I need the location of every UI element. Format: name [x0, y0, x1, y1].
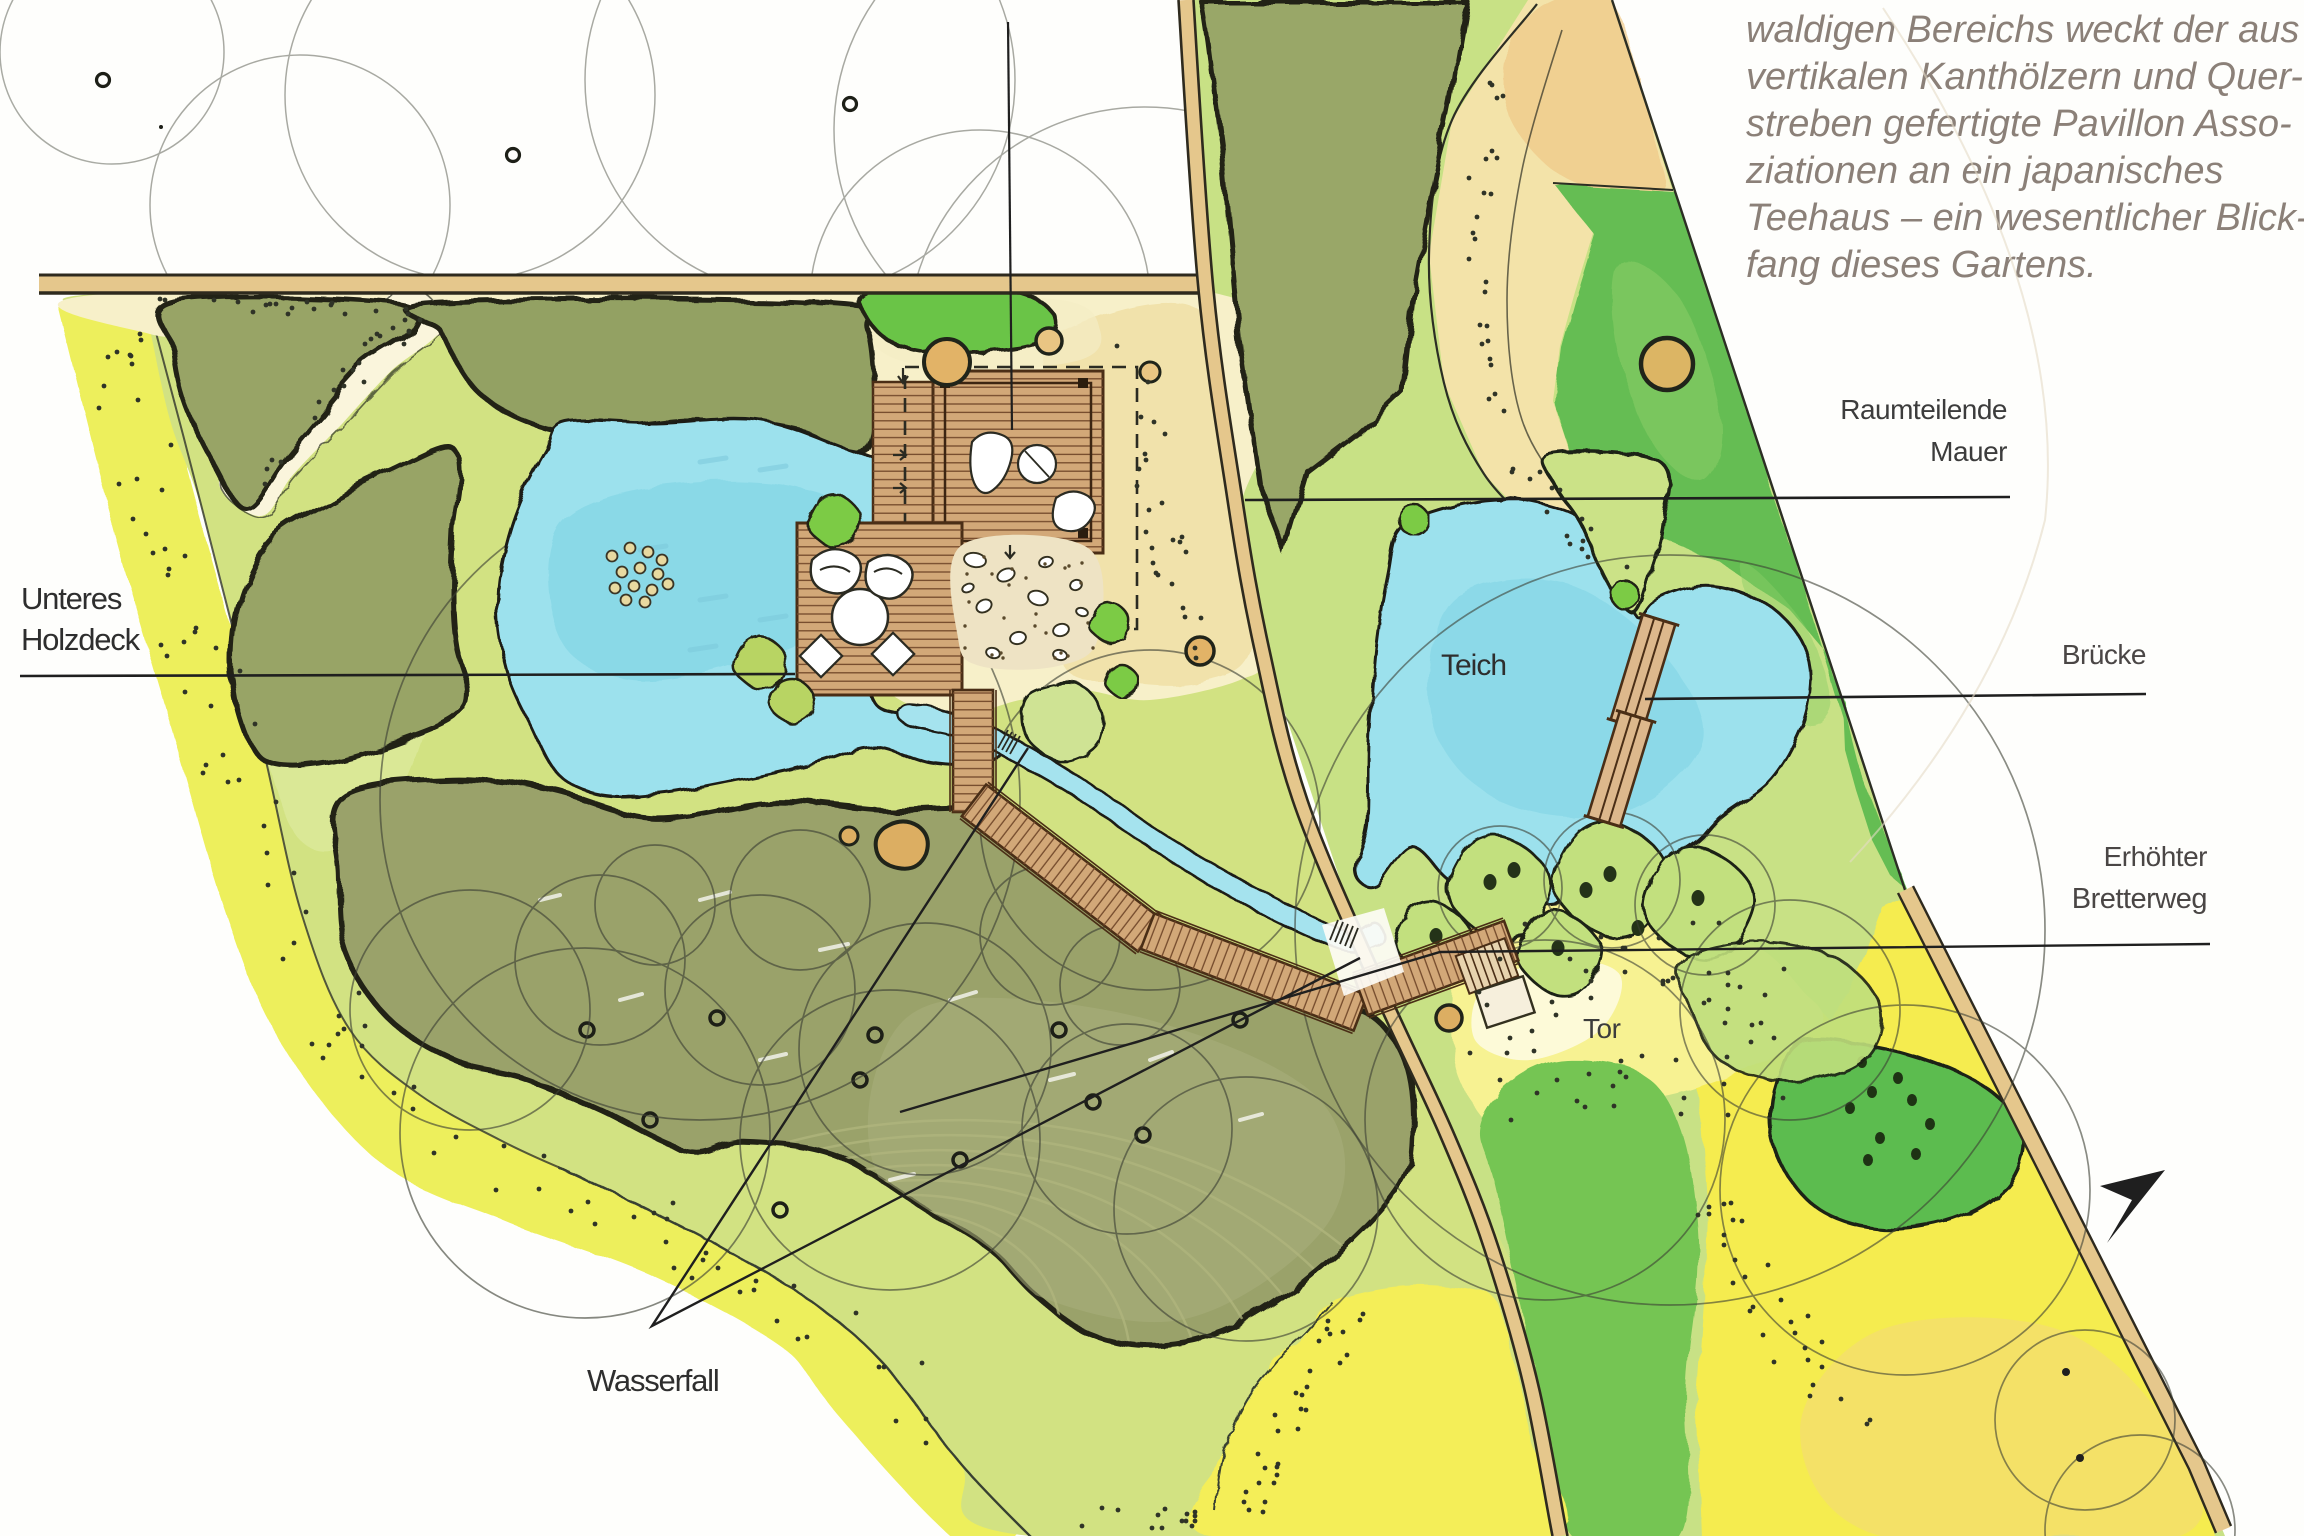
svg-text:Brücke: Brücke	[2062, 639, 2146, 670]
svg-text:Erhöhter: Erhöhter	[2104, 841, 2208, 872]
svg-text:vertikalen Kanthölzern und Que: vertikalen Kanthölzern und Quer-	[1746, 56, 2303, 98]
svg-text:Holzdeck: Holzdeck	[21, 622, 141, 657]
svg-text:fang dieses Gartens.: fang dieses Gartens.	[1746, 244, 2097, 286]
svg-text:ziationen an ein japanisches: ziationen an ein japanisches	[1745, 150, 2223, 192]
svg-text:Wasserfall: Wasserfall	[587, 1363, 719, 1398]
svg-text:Raumteilende: Raumteilende	[1840, 394, 2007, 425]
svg-text:streben gefertigte Pavillon As: streben gefertigte Pavillon Asso-	[1746, 103, 2292, 145]
svg-text:Teehaus – ein wesentlicher Bli: Teehaus – ein wesentlicher Blick-	[1746, 197, 2304, 239]
svg-text:Unteres: Unteres	[21, 581, 122, 616]
svg-text:Mauer: Mauer	[1930, 436, 2007, 467]
svg-text:Tor: Tor	[1583, 1013, 1621, 1044]
svg-text:Teich: Teich	[1441, 649, 1506, 682]
svg-text:waldigen Bereichs weckt der au: waldigen Bereichs weckt der aus	[1746, 9, 2299, 51]
svg-text:Bretterweg: Bretterweg	[2072, 883, 2207, 915]
